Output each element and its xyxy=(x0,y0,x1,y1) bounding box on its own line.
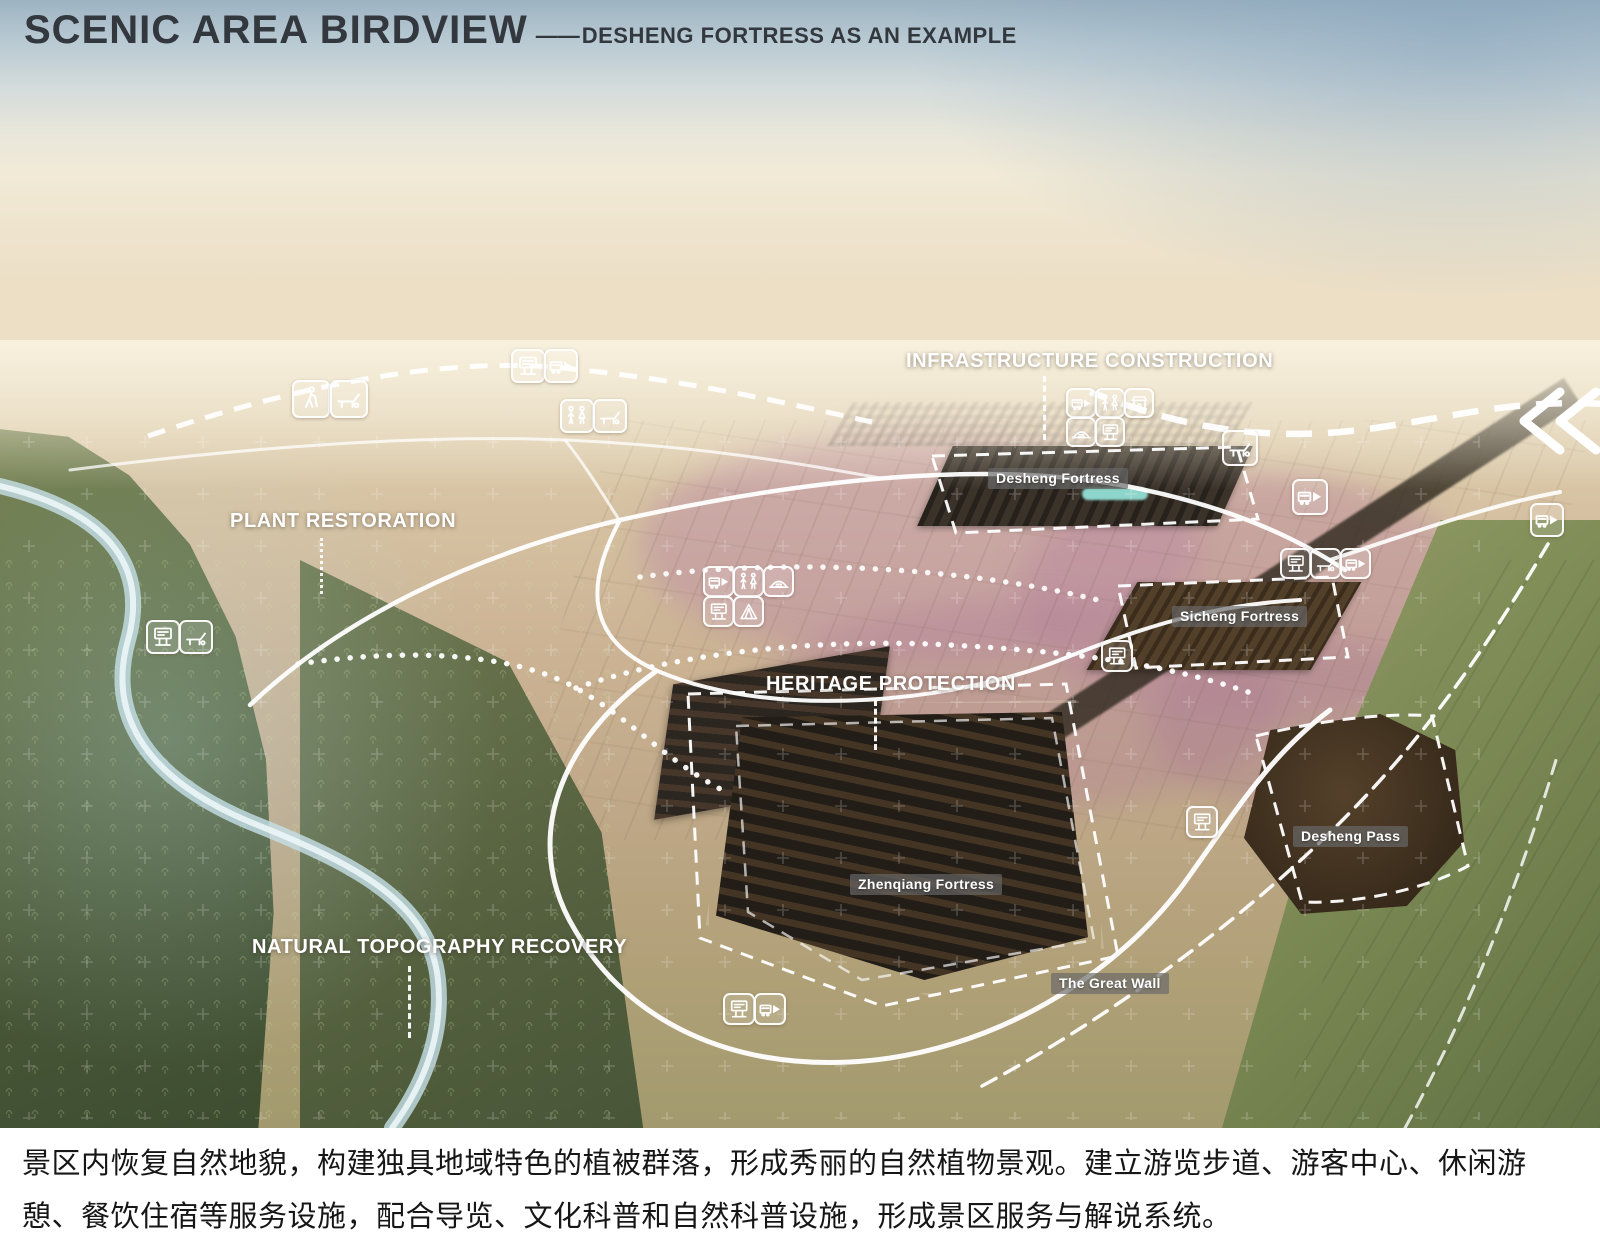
viewing-mound-icon xyxy=(1066,417,1096,447)
toilet-icon xyxy=(1095,388,1125,418)
slide: INFRASTRUCTURE CONSTRUCTION PLANT RESTOR… xyxy=(0,0,1600,1253)
aerial-birdview-image: INFRASTRUCTURE CONSTRUCTION PLANT RESTOR… xyxy=(0,0,1600,1128)
infrastructure-connector xyxy=(1043,376,1046,440)
title-subtitle: DESHENG FORTRESS AS AN EXAMPLE xyxy=(582,23,1017,49)
zone-label-heritage-protection: HERITAGE PROTECTION xyxy=(766,673,1016,696)
shuttle-bus-icon xyxy=(1340,548,1371,579)
lounge-chair-icon xyxy=(179,620,213,654)
heritage-connector xyxy=(874,700,877,750)
shuttle-bus-icon xyxy=(1066,388,1096,418)
topography-connector xyxy=(408,966,411,1038)
shuttle-bus-icon xyxy=(754,993,786,1025)
caption-band: 景区内恢复自然地貌，构建独具地域特色的植被群落，形成秀丽的自然植物景观。建立游览… xyxy=(0,1128,1600,1253)
lounge-chair-icon xyxy=(330,380,368,418)
shuttle-bus-icon xyxy=(1530,503,1564,537)
toilet-icon xyxy=(560,399,594,433)
lounge-chair-icon xyxy=(593,399,627,433)
lounge-chair-icon xyxy=(1310,548,1341,579)
toilet-icon xyxy=(733,566,764,597)
title-separator: —— xyxy=(536,23,580,49)
shop-icon xyxy=(1124,388,1154,418)
hiking-icon xyxy=(292,380,330,418)
shuttle-bus-icon xyxy=(544,349,578,383)
place-tag-great-wall: The Great Wall xyxy=(1051,973,1169,994)
place-tag-desheng-pass: Desheng Pass xyxy=(1293,826,1408,847)
page-title: SCENIC AREA BIRDVIEW —— DESHENG FORTRESS… xyxy=(24,8,1017,53)
place-tag-desheng-fortress: Desheng Fortress xyxy=(988,468,1128,489)
zone-label-infrastructure: INFRASTRUCTURE CONSTRUCTION xyxy=(906,350,1273,373)
zone-label-topography-recovery: NATURAL TOPOGRAPHY RECOVERY xyxy=(252,936,627,959)
info-sign-icon xyxy=(703,596,734,627)
info-sign-icon xyxy=(723,993,755,1025)
lounge-chair-icon xyxy=(1222,430,1258,466)
shuttle-bus-icon xyxy=(1292,479,1328,515)
title-main: SCENIC AREA BIRDVIEW xyxy=(24,8,528,53)
caption-text: 景区内恢复自然地貌，构建独具地域特色的植被群落，形成秀丽的自然植物景观。建立游览… xyxy=(0,1128,1600,1244)
viewing-mound-icon xyxy=(763,566,794,597)
info-sign-icon xyxy=(1095,417,1125,447)
zone-label-plant-restoration: PLANT RESTORATION xyxy=(230,510,456,533)
info-sign-icon xyxy=(146,620,180,654)
place-tag-sicheng-fortress: Sicheng Fortress xyxy=(1172,606,1307,627)
info-sign-icon xyxy=(1280,548,1311,579)
plant-restoration-connector xyxy=(320,538,323,594)
info-sign-icon xyxy=(511,349,545,383)
camp-icon xyxy=(733,596,764,627)
shuttle-bus-icon xyxy=(703,566,734,597)
info-sign-icon xyxy=(1186,806,1218,838)
info-sign-icon xyxy=(1101,640,1133,672)
place-tag-zhenqiang-fortress: Zhenqiang Fortress xyxy=(850,874,1002,895)
